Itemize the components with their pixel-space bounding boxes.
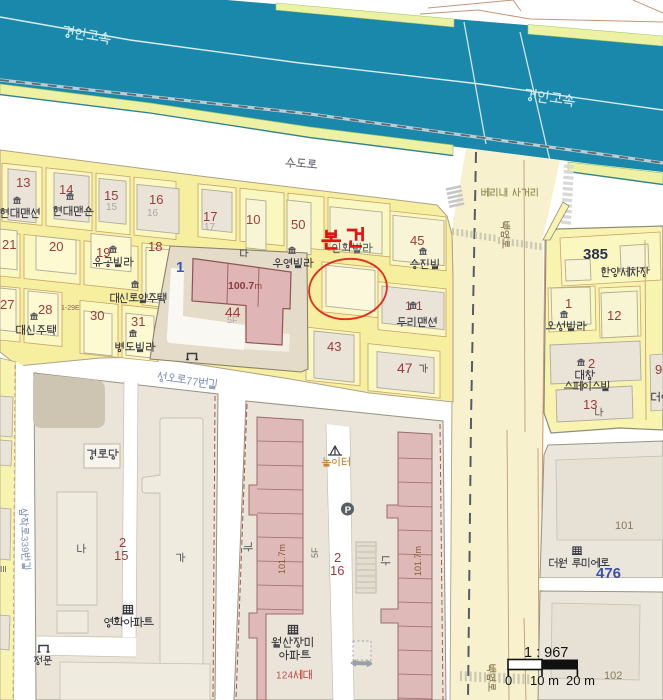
svg-text:21: 21 <box>2 237 16 252</box>
svg-text:31: 31 <box>131 314 145 329</box>
svg-text:10 m: 10 m <box>530 673 559 688</box>
svg-text:101: 101 <box>615 520 633 532</box>
svg-text:17: 17 <box>204 222 216 233</box>
svg-text:1-29E: 1-29E <box>61 305 80 312</box>
svg-text:28: 28 <box>38 302 52 317</box>
svg-text:III: III <box>0 565 7 574</box>
svg-text:16: 16 <box>149 192 163 207</box>
svg-text:1 : 967: 1 : 967 <box>524 645 568 661</box>
svg-text:2: 2 <box>588 356 595 371</box>
svg-text:1: 1 <box>176 259 184 276</box>
svg-text:20 m: 20 m <box>566 673 595 688</box>
svg-text:18: 18 <box>148 239 162 254</box>
svg-text:50: 50 <box>291 217 305 232</box>
svg-text:16: 16 <box>147 208 159 219</box>
svg-text:1: 1 <box>405 299 412 313</box>
svg-text:47: 47 <box>397 360 413 376</box>
svg-text:385: 385 <box>583 246 608 263</box>
svg-text:4: 4 <box>288 671 294 682</box>
svg-text:12: 12 <box>607 308 621 323</box>
svg-text:m: m <box>255 281 263 291</box>
svg-text:45: 45 <box>410 233 424 248</box>
svg-text:15: 15 <box>114 548 128 563</box>
svg-text:9: 9 <box>655 362 662 377</box>
svg-text:43: 43 <box>327 339 341 354</box>
svg-text:13: 13 <box>16 175 30 190</box>
svg-text:101.7m: 101.7m <box>413 546 423 576</box>
svg-text:P: P <box>345 505 352 516</box>
svg-text:15: 15 <box>104 188 118 203</box>
svg-text:1: 1 <box>416 299 423 313</box>
svg-text:10: 10 <box>246 212 260 227</box>
svg-text:16: 16 <box>330 563 344 578</box>
svg-text:15: 15 <box>106 202 118 213</box>
svg-text:5F: 5F <box>310 547 320 558</box>
svg-text:5F: 5F <box>227 315 238 325</box>
svg-text:101.7m: 101.7m <box>277 544 287 574</box>
svg-text:476: 476 <box>596 565 621 582</box>
svg-text:102: 102 <box>604 670 622 682</box>
svg-text:100.7: 100.7 <box>228 280 254 292</box>
svg-text:1: 1 <box>565 296 572 311</box>
svg-text:30: 30 <box>90 308 104 323</box>
svg-text:9: 9 <box>19 547 30 553</box>
svg-text:20: 20 <box>49 239 63 254</box>
svg-text:27: 27 <box>0 297 14 312</box>
svg-text:0: 0 <box>505 673 512 688</box>
